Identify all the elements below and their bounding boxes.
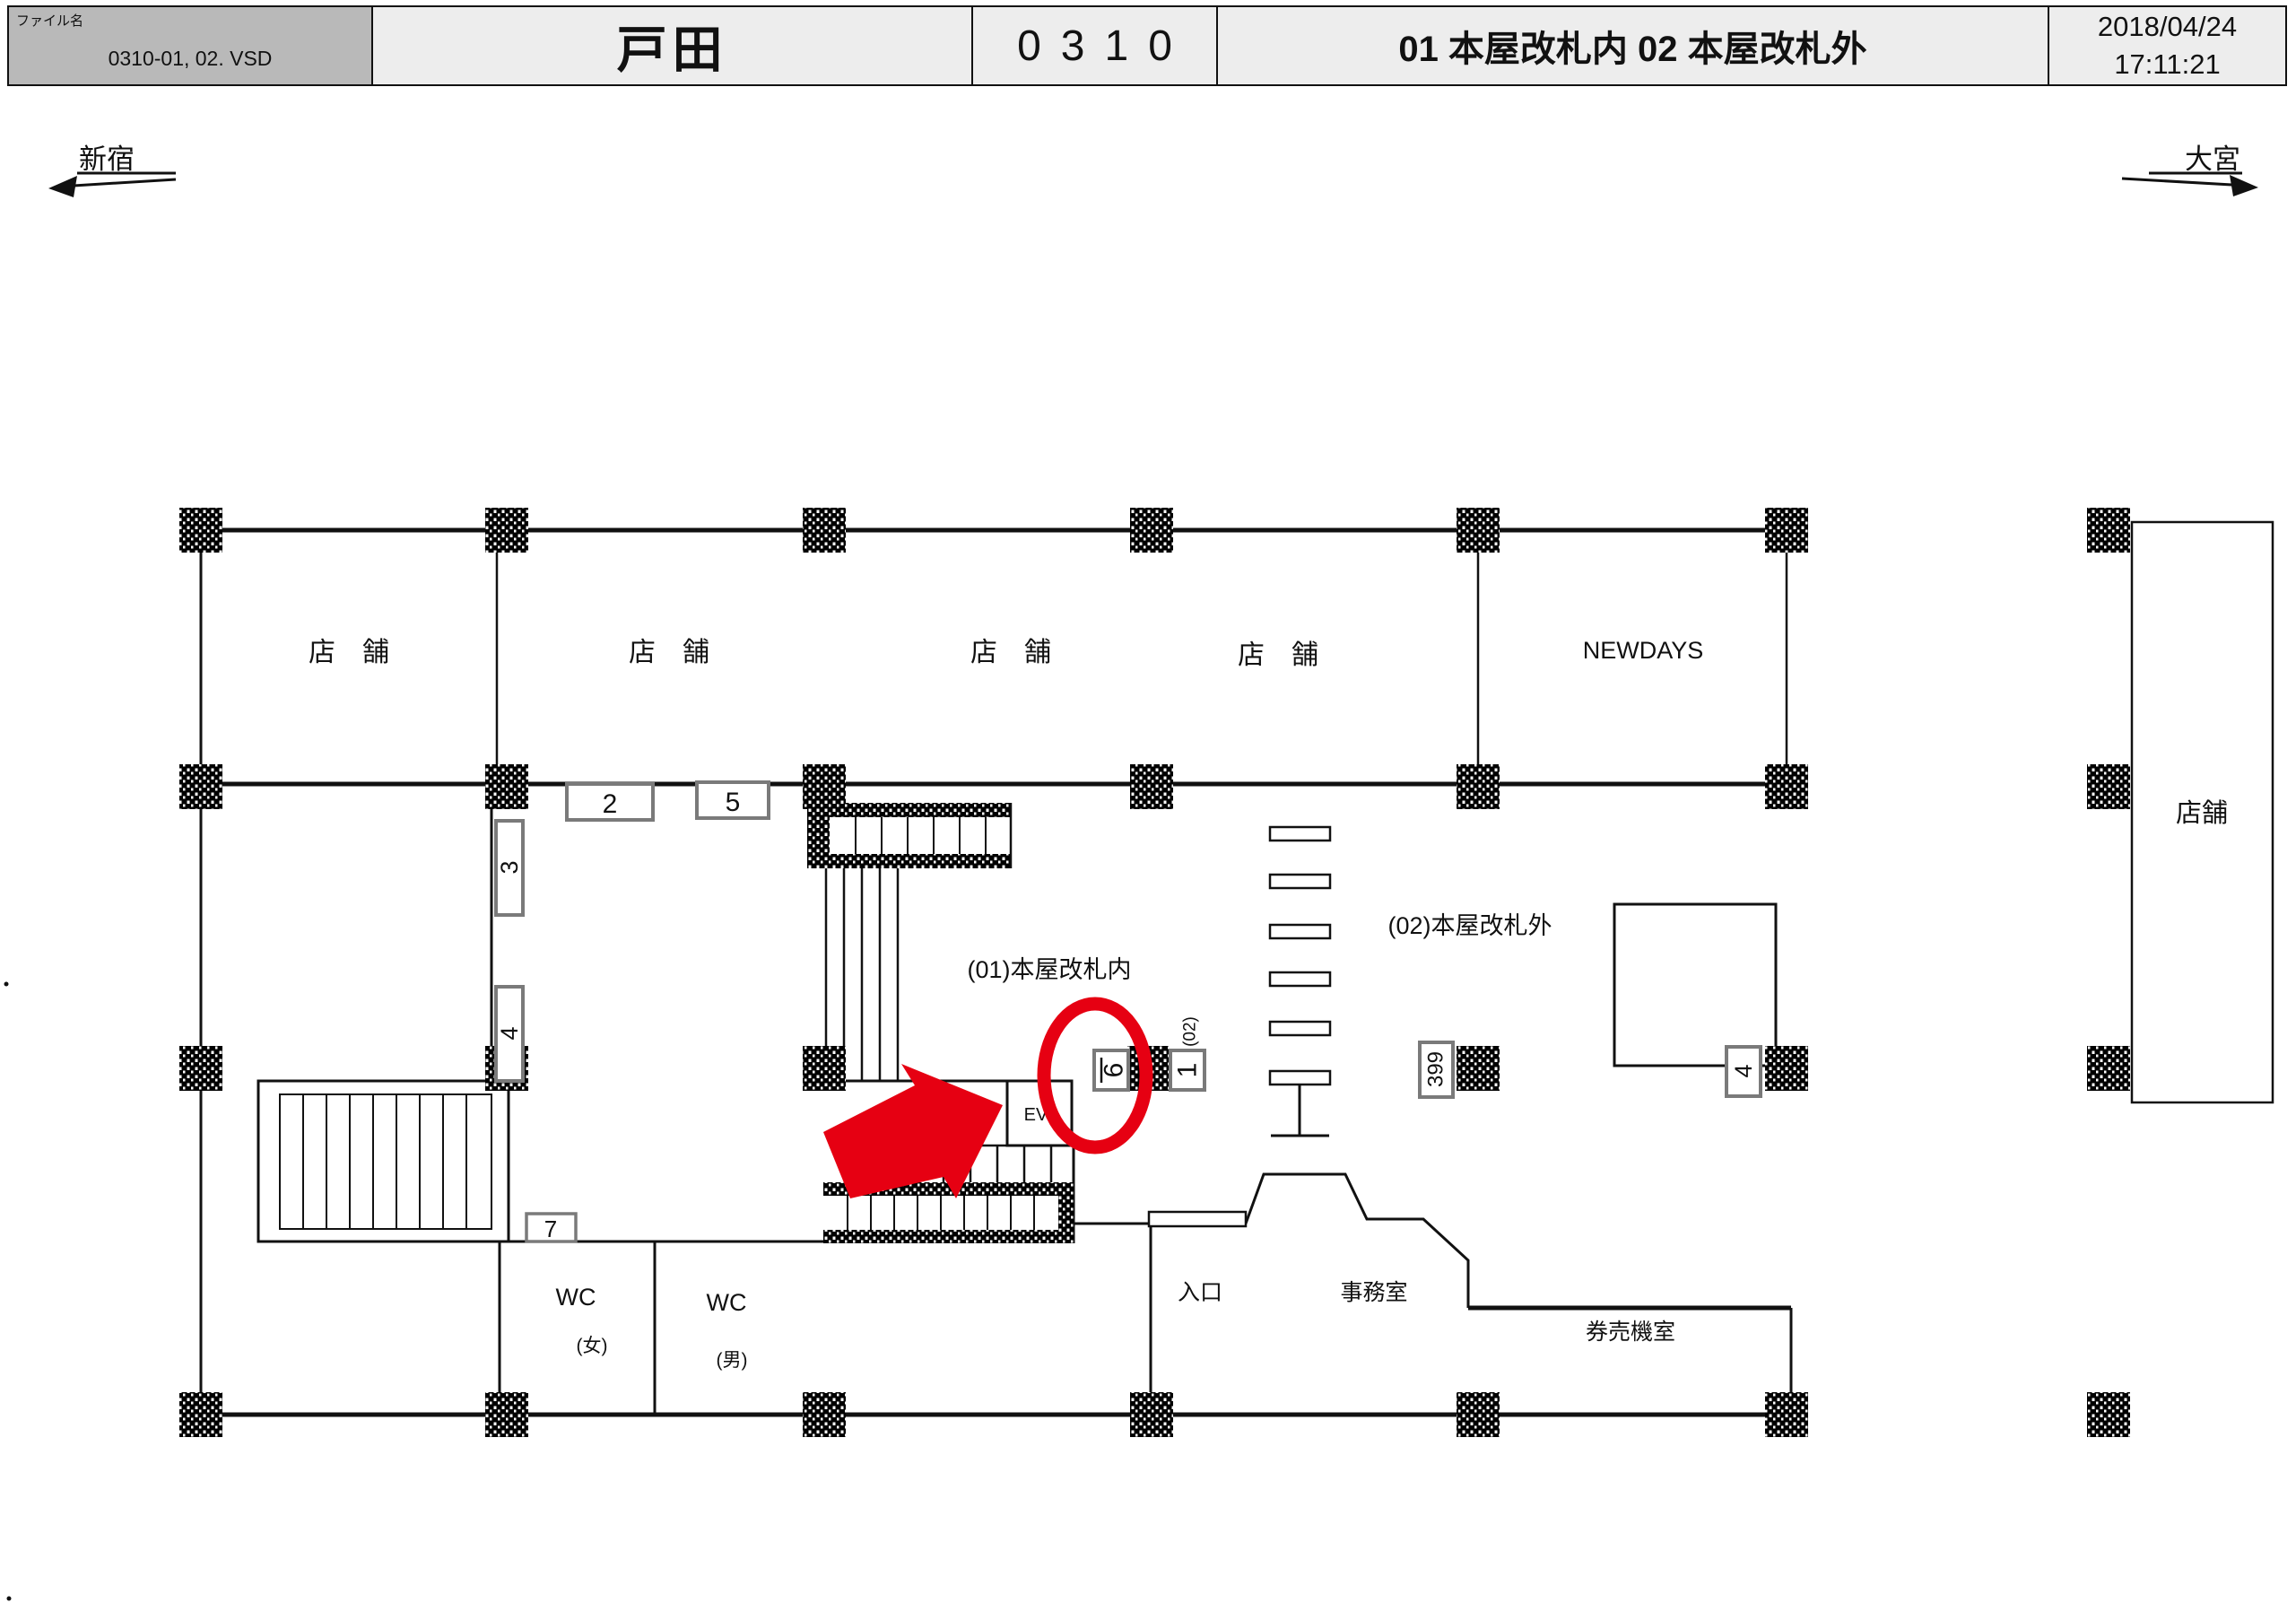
column [179, 764, 222, 809]
label-wc-male: WC [707, 1289, 747, 1316]
marker-3: 3 [496, 860, 523, 874]
ticket-gate [1270, 1022, 1330, 1035]
ticket-gate [1270, 827, 1330, 841]
stray-dot [4, 982, 9, 987]
column [485, 508, 528, 553]
label-area02: (02)本屋改札外 [1387, 912, 1552, 939]
marker-6: 6 [1100, 1063, 1129, 1078]
label-ticket-room: 券売機室 [1586, 1320, 1675, 1345]
column [803, 1392, 846, 1437]
label-newdays: NEWDAYS [1583, 637, 1704, 664]
column [2087, 764, 2130, 809]
column [1457, 1046, 1500, 1091]
ticket-gate [1270, 1071, 1330, 1085]
column [179, 1046, 222, 1091]
column [179, 1392, 222, 1437]
label-wc-male-sub: (男) [717, 1350, 748, 1371]
marker-2: 2 [603, 789, 618, 819]
column [1130, 508, 1173, 553]
column [1765, 1046, 1808, 1091]
column [803, 1046, 846, 1091]
label-shop-right: 店舗 [2176, 798, 2228, 828]
arrow-left-shinjuku [48, 173, 176, 197]
arrow-right-omiya [2122, 173, 2258, 196]
label-shop-3: 店 舗 [970, 638, 1051, 667]
marker-route02: (02) [1181, 1016, 1200, 1047]
column [1457, 764, 1500, 809]
column [1765, 764, 1808, 809]
column [1457, 1392, 1500, 1437]
ticket-gate [1270, 925, 1330, 938]
ticket-gate [1270, 972, 1330, 986]
stairs-left [258, 1081, 509, 1241]
column [1130, 1392, 1173, 1437]
column [803, 764, 846, 809]
column [485, 1392, 528, 1437]
marker-1: 1 [1173, 1063, 1203, 1078]
column [1765, 1392, 1808, 1437]
column [179, 508, 222, 553]
ticket-gate [1270, 875, 1330, 888]
marker-7: 7 [544, 1215, 557, 1242]
label-shop-1: 店 舗 [309, 638, 389, 667]
marker-4-left: 4 [496, 1026, 523, 1040]
column [1130, 764, 1173, 809]
marker-5: 5 [726, 788, 741, 817]
column [2087, 508, 2130, 553]
walls [201, 522, 2273, 1415]
column [803, 508, 846, 553]
label-entrance: 入口 [1178, 1280, 1222, 1305]
label-area01: (01)本屋改札内 [967, 956, 1131, 983]
column [2087, 1046, 2130, 1091]
highlight-arrow [823, 1064, 1003, 1198]
structural-columns [179, 508, 2130, 1437]
marker-399: 399 [1424, 1051, 1448, 1087]
marker-4-right: 4 [1730, 1064, 1757, 1077]
label-office: 事務室 [1340, 1280, 1407, 1305]
stray-dot [7, 1597, 12, 1601]
column [485, 764, 528, 809]
stairs-upper [807, 803, 1072, 1081]
column [1457, 508, 1500, 553]
label-wc-female: WC [556, 1284, 596, 1311]
label-shop-2: 店 舗 [629, 638, 709, 667]
label-shop-4: 店 舗 [1238, 640, 1318, 670]
column [2087, 1392, 2130, 1437]
column [1765, 508, 1808, 553]
ticket-gates [1270, 827, 1330, 1136]
label-wc-female-sub: (女) [577, 1336, 608, 1356]
floor-plan: EV 店 舗 店 舗 店 舗 店 舗 NEWDAYS 店舗 (01)本屋改札内 … [0, 0, 2296, 1603]
